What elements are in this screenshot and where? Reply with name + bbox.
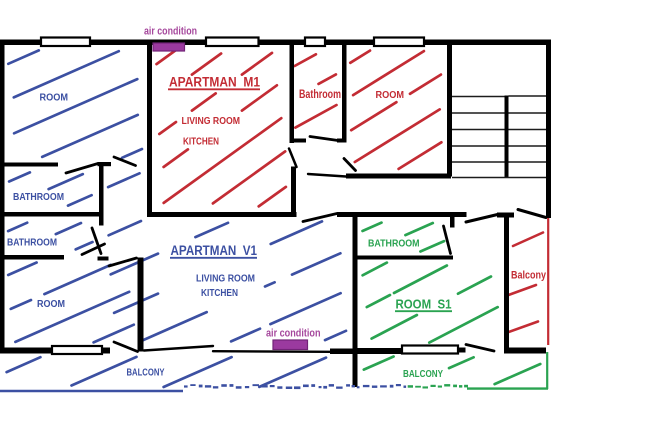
svg-text:KITCHEN: KITCHEN [183, 136, 219, 148]
svg-text:BATHROOM: BATHROOM [368, 239, 420, 250]
svg-text:APARTMAN M1: APARTMAN M1 [169, 75, 260, 90]
svg-text:air condition: air condition [266, 328, 321, 340]
svg-text:BALCONY: BALCONY [127, 368, 165, 379]
svg-text:Balcony: Balcony [511, 270, 547, 282]
svg-text:ROOM: ROOM [376, 89, 405, 101]
svg-text:APARTMAN V1: APARTMAN V1 [171, 243, 258, 258]
svg-text:LIVING ROOM: LIVING ROOM [196, 273, 255, 285]
svg-text:ROOM S1: ROOM S1 [396, 297, 452, 312]
svg-text:ROOM: ROOM [40, 92, 69, 104]
svg-text:KITCHEN: KITCHEN [201, 287, 238, 299]
svg-text:air condition: air condition [144, 26, 197, 38]
svg-text:Bathroom: Bathroom [299, 89, 341, 101]
svg-text:BALCONY: BALCONY [403, 369, 443, 380]
svg-text:BATHROOM: BATHROOM [13, 192, 64, 203]
svg-text:ROOM: ROOM [37, 298, 65, 310]
svg-text:BATHROOM: BATHROOM [7, 238, 57, 249]
svg-text:LIVING ROOM: LIVING ROOM [182, 115, 241, 127]
